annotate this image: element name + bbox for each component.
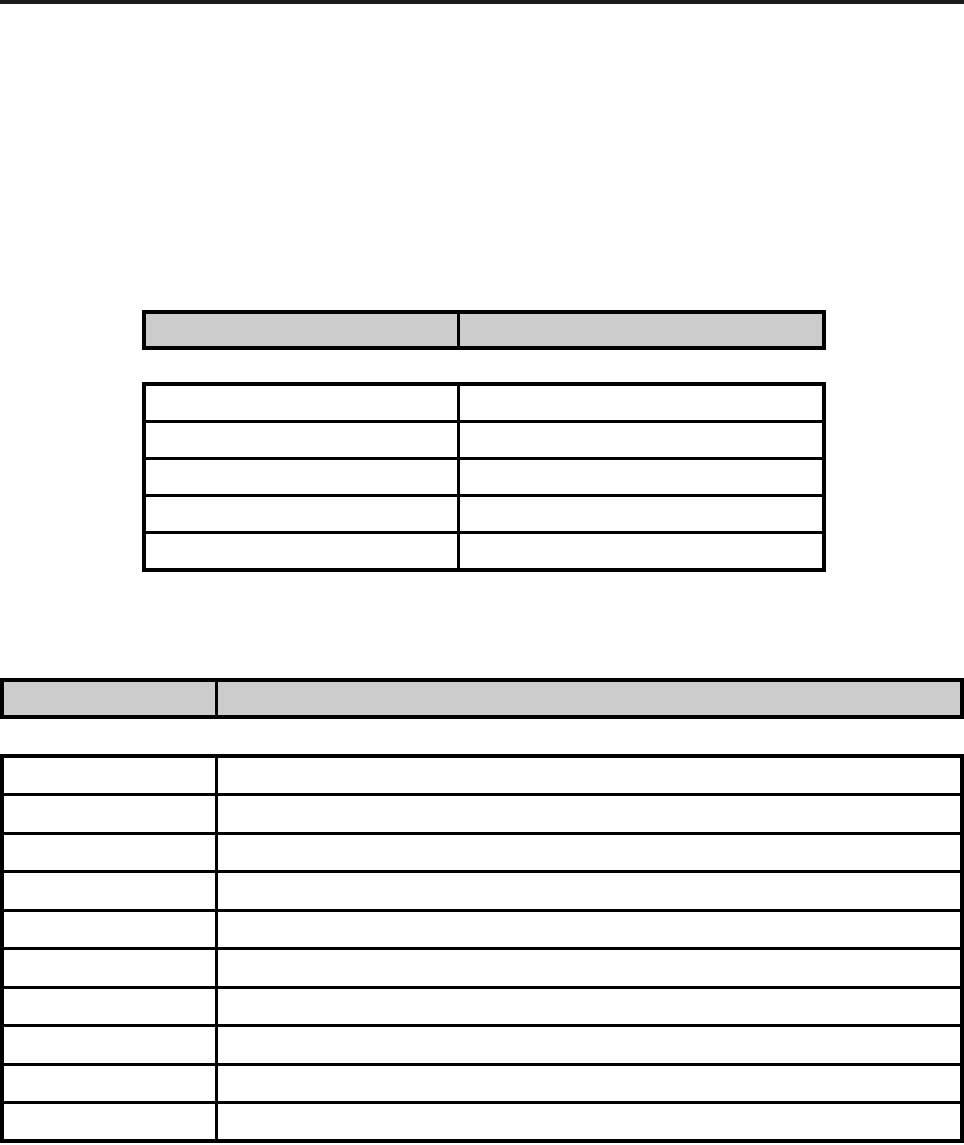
document-page <box>0 0 964 1145</box>
table-row <box>144 421 824 458</box>
table-row <box>144 496 824 533</box>
table-cell <box>216 1064 962 1103</box>
table-cell <box>2 833 216 872</box>
table-row <box>144 458 824 495</box>
header-cell <box>458 312 824 348</box>
table-cell <box>2 1103 216 1142</box>
table-cell <box>216 756 962 795</box>
table-row <box>2 833 962 872</box>
table-row <box>2 756 962 795</box>
table-cell <box>2 987 216 1026</box>
table-cell <box>2 949 216 988</box>
table-cell <box>216 1026 962 1065</box>
table-cell <box>2 872 216 911</box>
table-cell <box>458 421 824 458</box>
table-row <box>2 949 962 988</box>
header-cell <box>216 680 962 717</box>
table-cell <box>458 384 824 421</box>
table-row <box>2 910 962 949</box>
header-cell <box>2 680 216 717</box>
table-cell <box>144 458 458 495</box>
table-row <box>144 533 824 570</box>
lower-body-table <box>0 754 964 1143</box>
table-row <box>2 1103 962 1142</box>
table-row <box>144 384 824 421</box>
table-cell <box>144 421 458 458</box>
table-cell <box>2 1026 216 1065</box>
table-cell <box>144 496 458 533</box>
header-cell <box>144 312 458 348</box>
table-row <box>2 987 962 1026</box>
table-cell <box>2 756 216 795</box>
upper-shaded-header-table <box>142 310 826 350</box>
table-row <box>2 795 962 834</box>
table-cell <box>216 910 962 949</box>
table-cell <box>216 872 962 911</box>
table-cell <box>216 795 962 834</box>
table-row <box>2 1064 962 1103</box>
table-cell <box>216 1103 962 1142</box>
lower-shaded-header-table <box>0 678 964 719</box>
table-cell <box>144 533 458 570</box>
table-cell <box>144 384 458 421</box>
table-cell <box>458 533 824 570</box>
table-cell <box>216 987 962 1026</box>
table-cell <box>2 795 216 834</box>
table-row <box>2 1026 962 1065</box>
upper-body-table <box>142 382 826 572</box>
table-cell <box>458 496 824 533</box>
page-top-rule <box>0 0 964 4</box>
table-row <box>2 872 962 911</box>
table-cell <box>2 1064 216 1103</box>
table-cell <box>216 949 962 988</box>
table-cell <box>216 833 962 872</box>
table-cell <box>2 910 216 949</box>
table-row <box>144 312 824 348</box>
table-cell <box>458 458 824 495</box>
table-row <box>2 680 962 717</box>
